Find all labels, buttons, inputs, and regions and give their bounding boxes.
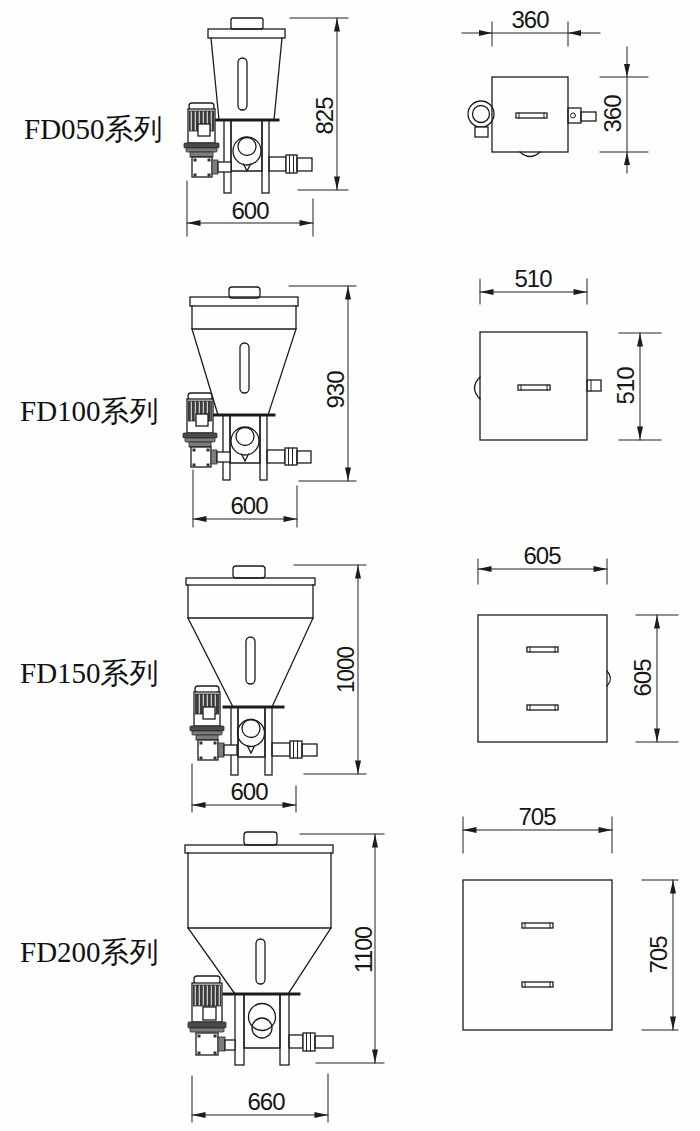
row-fd050: FD050系列 xyxy=(24,6,648,236)
motor-flange2 xyxy=(185,438,215,442)
fd100-front-width-dimension: 600 xyxy=(193,470,297,527)
motor-junction-box xyxy=(198,124,210,136)
fd150-top-view: 605 605 xyxy=(478,542,678,742)
top-motor-base xyxy=(475,127,488,137)
top-width-dim-text: 360 xyxy=(511,6,549,33)
outlet-pipe xyxy=(269,155,312,173)
motor-coupler xyxy=(189,442,211,447)
fd050-front-view: 825 600 xyxy=(184,18,348,236)
hopper-cylinder xyxy=(188,585,313,618)
fd200-front-width-dimension: 660 xyxy=(192,1074,328,1122)
hopper-rim xyxy=(208,29,285,38)
base-housing xyxy=(230,415,260,463)
top-width-dim-text: 705 xyxy=(518,803,556,830)
top-slot-upper xyxy=(527,647,558,652)
top-slot xyxy=(516,113,547,118)
discharge-port xyxy=(233,137,261,171)
top-height-dim-text: 510 xyxy=(612,367,639,405)
motor-junction-box xyxy=(196,414,208,426)
fd050-front-height-dimension: 825 xyxy=(290,18,348,190)
fd050-top-height-dimension: 360 xyxy=(599,47,648,173)
fd150-front-view: 1000 600 xyxy=(186,565,366,812)
top-motor-inner xyxy=(473,106,490,123)
gearbox-ring xyxy=(211,450,217,464)
support-leg-left xyxy=(235,994,244,1065)
series-label-fd200: FD200系列 xyxy=(20,936,159,968)
series-label-fd050: FD050系列 xyxy=(24,113,163,145)
motor-junction-box xyxy=(203,1007,216,1020)
series-label-fd150: FD150系列 xyxy=(20,657,159,689)
motor-flange2 xyxy=(190,1028,224,1032)
top-width-dim-text: 510 xyxy=(514,265,552,292)
front-width-dim-text: 600 xyxy=(230,778,268,805)
motor-flange xyxy=(183,433,217,438)
discharge-port xyxy=(249,1004,276,1039)
motor-flange xyxy=(188,1022,226,1028)
row-fd100: FD100系列 xyxy=(20,265,661,527)
drive-motor xyxy=(188,976,235,1055)
outlet-pipe xyxy=(267,448,311,465)
gearbox-ring xyxy=(218,743,224,757)
support-leg-right xyxy=(265,707,272,775)
top-body-outline xyxy=(492,77,568,152)
front-height-dim-text: 1100 xyxy=(350,926,377,973)
gearbox-ring xyxy=(218,1037,225,1051)
motor-coupler xyxy=(196,735,218,740)
motor-flange2 xyxy=(186,148,217,152)
front-height-dim-text: 930 xyxy=(322,371,349,409)
hopper-lid xyxy=(231,18,263,29)
fd100-top-height-dimension: 510 xyxy=(612,333,661,440)
top-body-outline xyxy=(463,880,612,1030)
feeder-dimension-sheet: FD050系列 xyxy=(0,0,700,1131)
drive-motor xyxy=(190,686,237,760)
top-width-dim-text: 605 xyxy=(523,542,561,569)
row-fd200: FD200系列 xyxy=(20,803,678,1122)
top-slot-lower xyxy=(522,982,553,987)
top-slot xyxy=(518,385,550,390)
front-height-dim-text: 1000 xyxy=(332,646,359,693)
front-width-dim-text: 600 xyxy=(230,492,268,519)
fd200-front-height-dimension: 1100 xyxy=(300,834,384,1063)
top-height-dim-text: 360 xyxy=(599,95,626,133)
gearbox-ring xyxy=(212,160,218,174)
motor-fins xyxy=(194,985,221,1006)
discharge-port xyxy=(231,427,259,461)
gearbox-outlet xyxy=(224,745,237,755)
top-height-dim-text: 605 xyxy=(629,659,656,697)
hopper-lid xyxy=(244,832,277,845)
fd100-front-view: 930 600 xyxy=(183,286,356,527)
top-body-outline xyxy=(478,615,607,742)
motor-junction-box xyxy=(203,707,215,719)
outlet-pipe xyxy=(272,741,317,758)
fd050-front-width-dimension: 600 xyxy=(187,181,313,236)
top-outlet-stub xyxy=(568,108,596,123)
top-outlet-stub xyxy=(587,380,601,391)
support-leg-left xyxy=(224,120,231,193)
hopper-rim xyxy=(186,578,315,585)
hopper-lid xyxy=(233,566,265,578)
hopper-cylinder xyxy=(188,853,331,928)
outlet-pipe xyxy=(289,1033,333,1051)
hopper-cylinder xyxy=(192,306,296,329)
fd050-top-width-dimension: 360 xyxy=(462,6,600,46)
fd200-top-width-dimension: 705 xyxy=(463,803,612,853)
support-leg-right xyxy=(260,415,267,480)
fd050-top-view: 360 360 xyxy=(462,6,648,173)
motor-flange xyxy=(184,143,219,148)
sight-window xyxy=(246,637,255,684)
motor-coupler xyxy=(190,152,213,157)
series-label-fd100: FD100系列 xyxy=(20,395,159,427)
fd100-top-width-dimension: 510 xyxy=(480,265,587,304)
support-leg-right xyxy=(280,994,289,1065)
fd150-front-width-dimension: 600 xyxy=(192,764,296,812)
motor-flange xyxy=(190,726,224,731)
gearbox-outlet xyxy=(225,1040,235,1050)
support-leg-left xyxy=(223,415,230,480)
fd200-top-height-dimension: 705 xyxy=(642,880,678,1030)
fd200-front-view: 1100 660 xyxy=(185,832,384,1122)
front-width-dim-text: 600 xyxy=(231,197,269,224)
motor-flange2 xyxy=(192,731,222,735)
sight-window xyxy=(238,58,247,110)
sight-window xyxy=(256,939,265,984)
top-body-outline xyxy=(480,332,587,440)
fd100-top-view: 510 510 xyxy=(475,265,662,440)
top-bottom-arc xyxy=(520,152,540,157)
fd150-front-height-dimension: 1000 xyxy=(294,565,366,774)
gearbox-outlet xyxy=(217,452,230,462)
support-leg-right xyxy=(262,120,269,193)
fd100-front-height-dimension: 930 xyxy=(289,286,356,481)
support-leg-left xyxy=(231,707,238,775)
fd150-top-width-dimension: 605 xyxy=(478,542,607,584)
discharge-port xyxy=(238,720,265,754)
row-fd150: FD150系列 xyxy=(20,542,678,812)
fd150-top-height-dimension: 605 xyxy=(629,615,678,742)
fd200-top-view: 705 705 xyxy=(463,803,678,1030)
dimension-diagram: FD050系列 xyxy=(0,0,700,1131)
sight-window xyxy=(240,343,249,393)
top-slot-upper xyxy=(522,923,553,928)
front-height-dim-text: 825 xyxy=(311,97,338,135)
base-housing xyxy=(231,120,262,171)
front-width-dim-text: 660 xyxy=(247,1088,285,1115)
hopper-rim xyxy=(185,845,333,853)
top-motor-arc xyxy=(475,377,481,399)
top-height-dim-text: 705 xyxy=(645,936,672,974)
gearbox-outlet xyxy=(218,162,231,172)
top-slot-lower xyxy=(527,705,558,710)
